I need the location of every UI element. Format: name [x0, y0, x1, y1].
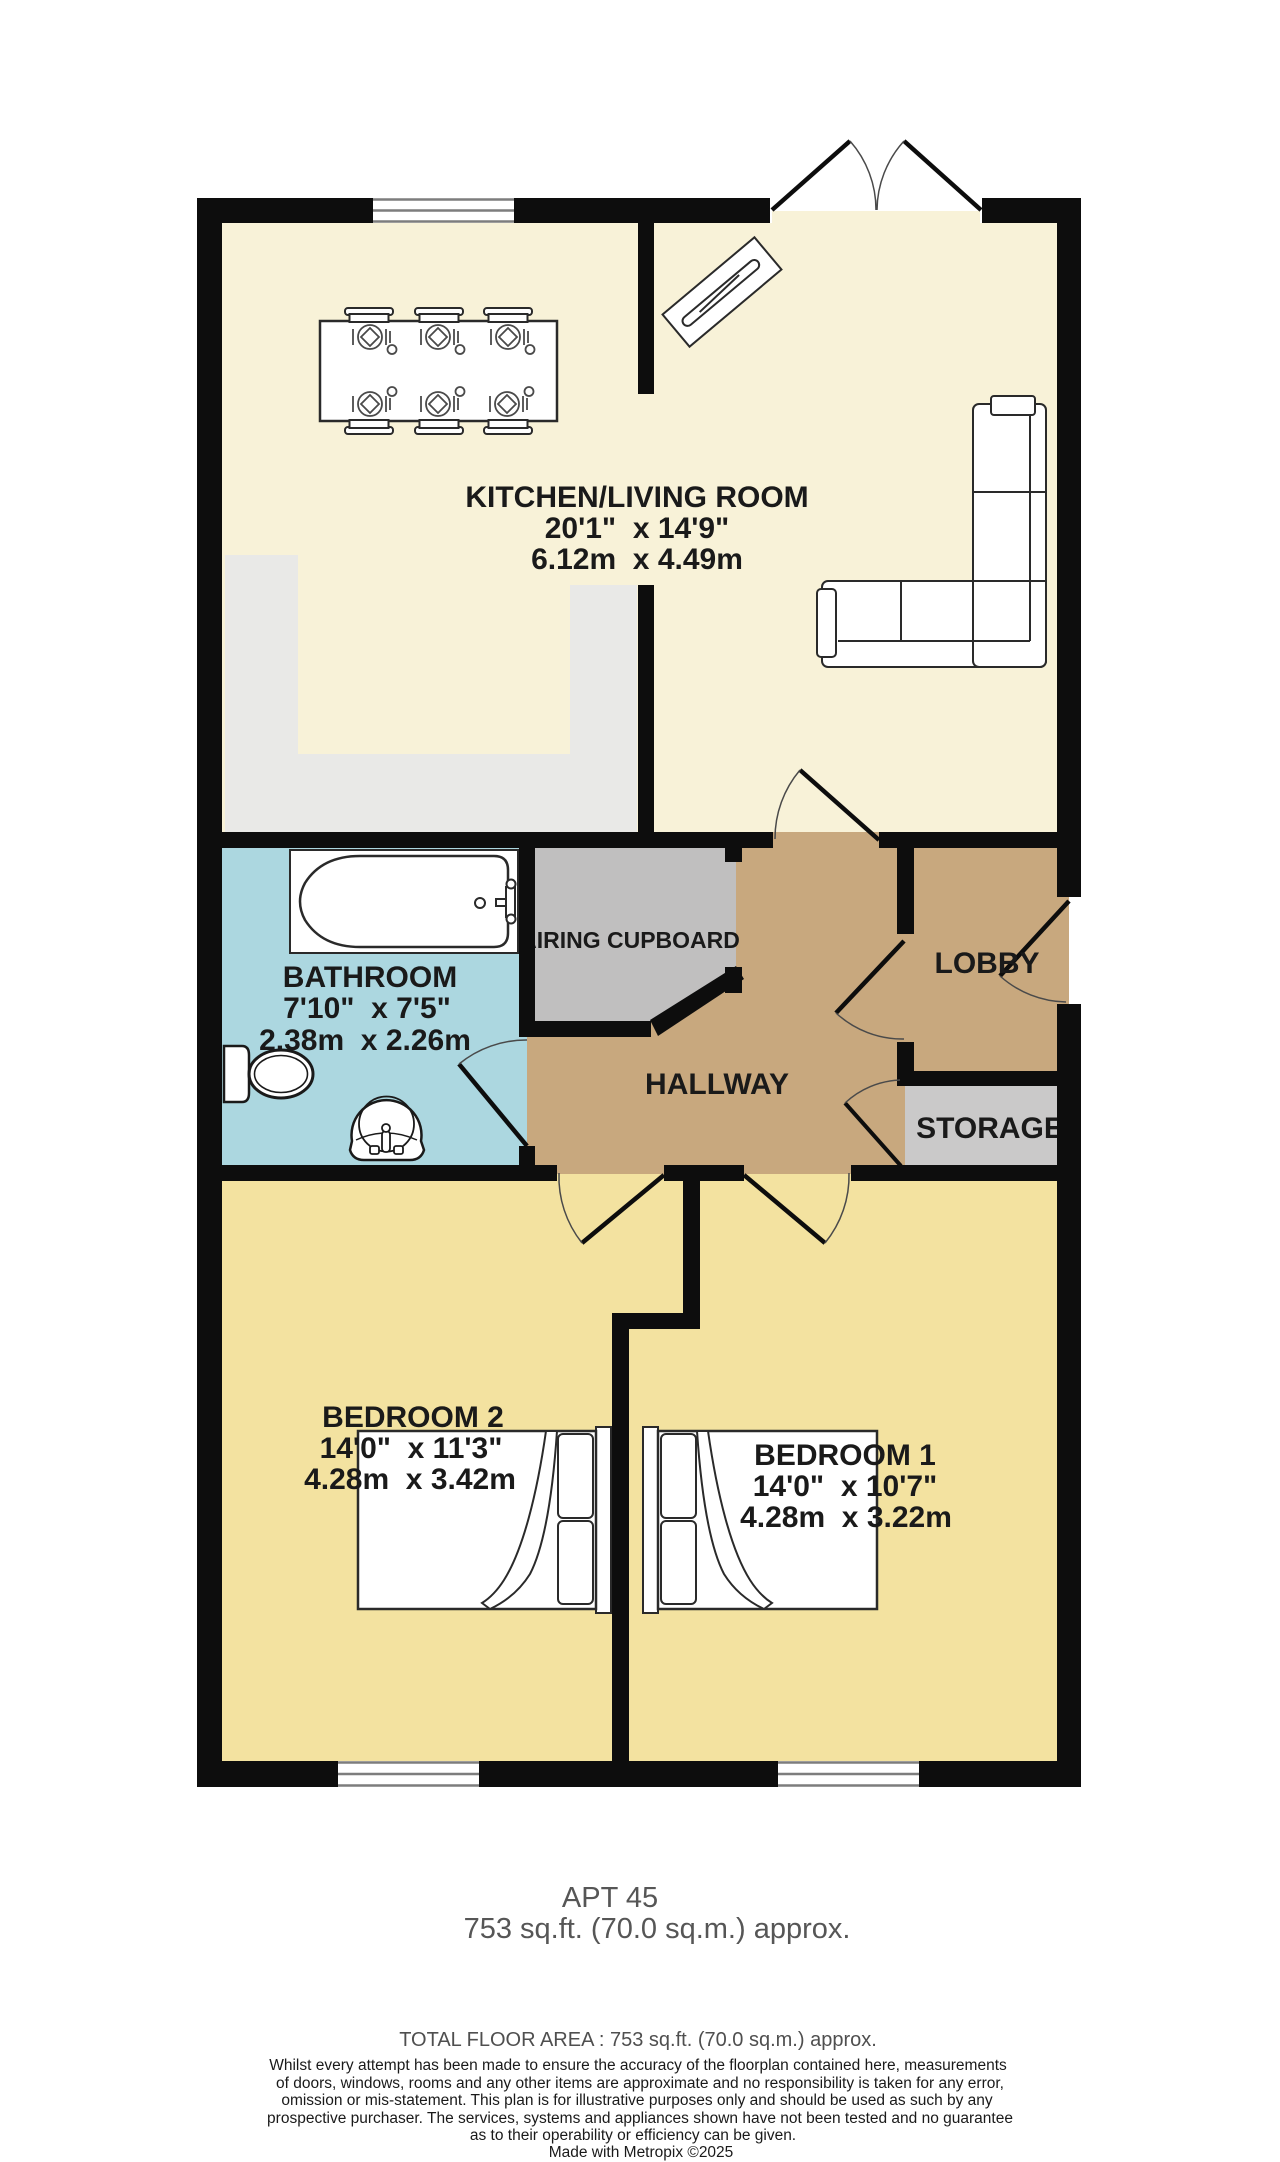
svg-text:as to their operability or eff: as to their operability or efficiency ca… — [470, 2127, 796, 2144]
svg-text:753 sq.ft. (70.0 sq.m.) approx: 753 sq.ft. (70.0 sq.m.) approx. — [464, 1913, 851, 1945]
svg-text:AIRING CUPBOARD: AIRING CUPBOARD — [520, 927, 740, 953]
svg-text:14'0" x 11'3": 14'0" x 11'3" — [320, 1432, 503, 1465]
svg-text:BEDROOM 2: BEDROOM 2 — [322, 1401, 504, 1434]
svg-text:6.12m x 4.49m: 6.12m x 4.49m — [531, 543, 743, 576]
svg-text:prospective purchaser. The ser: prospective purchaser. The services, sys… — [267, 2110, 1013, 2127]
svg-text:14'0" x 10'7": 14'0" x 10'7" — [753, 1470, 938, 1503]
svg-text:20'1" x 14'9": 20'1" x 14'9" — [545, 512, 730, 545]
svg-text:4.28m x 3.22m: 4.28m x 3.22m — [740, 1501, 952, 1534]
svg-text:BATHROOM: BATHROOM — [283, 961, 457, 994]
svg-text:HALLWAY: HALLWAY — [645, 1068, 789, 1101]
svg-text:LOBBY: LOBBY — [935, 947, 1040, 980]
svg-text:Made with Metropix ©2025: Made with Metropix ©2025 — [549, 2144, 734, 2161]
svg-text:BEDROOM 1: BEDROOM 1 — [754, 1439, 936, 1472]
svg-text:7'10" x 7'5": 7'10" x 7'5" — [283, 992, 451, 1025]
svg-text:Whilst every attempt has been: Whilst every attempt has been made to en… — [269, 2057, 1007, 2074]
svg-text:omission or mis-statement. Thi: omission or mis-statement. This plan is … — [281, 2092, 993, 2109]
svg-text:APT 45: APT 45 — [562, 1882, 658, 1914]
svg-text:KITCHEN/LIVING ROOM: KITCHEN/LIVING ROOM — [465, 481, 808, 514]
svg-text:STORAGE: STORAGE — [916, 1112, 1064, 1145]
svg-text:TOTAL FLOOR AREA : 753 sq.ft.: TOTAL FLOOR AREA : 753 sq.ft. (70.0 sq.m… — [399, 2029, 877, 2051]
svg-text:2.38m x 2.26m: 2.38m x 2.26m — [259, 1024, 471, 1057]
svg-text:4.28m x 3.42m: 4.28m x 3.42m — [304, 1463, 516, 1496]
svg-text:of doors, windows, rooms and a: of doors, windows, rooms and any other i… — [276, 2075, 1004, 2092]
